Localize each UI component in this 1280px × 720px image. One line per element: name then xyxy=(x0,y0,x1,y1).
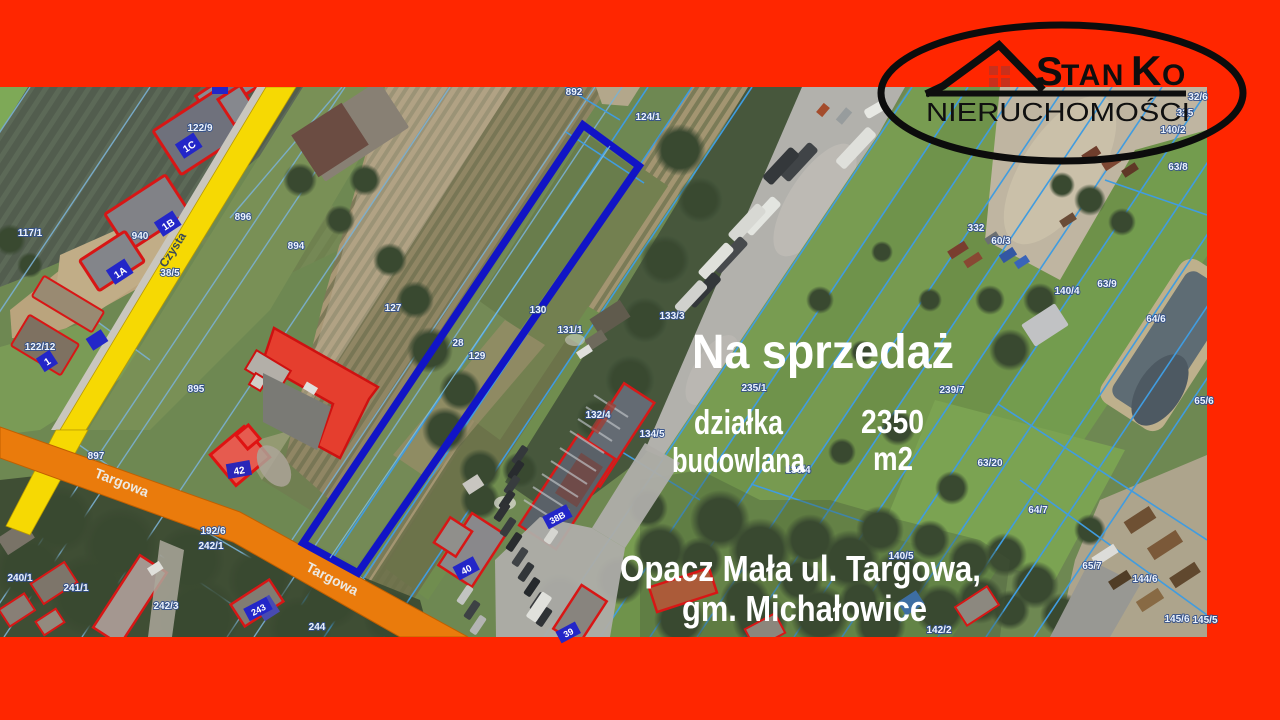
svg-text:63/9: 63/9 xyxy=(1097,279,1117,290)
svg-text:60/3: 60/3 xyxy=(991,236,1011,247)
svg-text:38/5: 38/5 xyxy=(160,268,180,279)
svg-text:895: 895 xyxy=(188,384,205,395)
svg-text:192/6: 192/6 xyxy=(200,526,225,537)
svg-text:892: 892 xyxy=(566,87,583,98)
svg-text:122/9: 122/9 xyxy=(187,123,212,134)
svg-text:940: 940 xyxy=(132,231,149,242)
svg-text:Na sprzedaż: Na sprzedaż xyxy=(692,326,954,379)
svg-text:244: 244 xyxy=(309,622,326,633)
svg-text:142/2: 142/2 xyxy=(926,625,951,636)
svg-text:130: 130 xyxy=(530,305,547,316)
svg-text:894: 894 xyxy=(288,241,305,252)
svg-text:gm. Michałowice: gm. Michałowice xyxy=(682,588,927,629)
svg-text:63/20: 63/20 xyxy=(977,458,1002,469)
svg-text:32/6: 32/6 xyxy=(1188,92,1208,103)
svg-text:64/7: 64/7 xyxy=(1028,505,1048,516)
svg-text:NIERUCHOMOŚCI: NIERUCHOMOŚCI xyxy=(926,97,1190,127)
svg-text:896: 896 xyxy=(235,212,252,223)
svg-text:K: K xyxy=(1131,47,1161,94)
svg-text:145/5: 145/5 xyxy=(1192,615,1217,626)
svg-text:132/4: 132/4 xyxy=(585,410,610,421)
svg-text:131/1: 131/1 xyxy=(557,325,582,336)
svg-text:TAN: TAN xyxy=(1061,59,1125,92)
svg-text:127: 127 xyxy=(385,303,402,314)
svg-text:133/3: 133/3 xyxy=(659,311,684,322)
svg-text:O: O xyxy=(1162,59,1185,92)
svg-text:124/1: 124/1 xyxy=(635,112,660,123)
svg-text:65/7: 65/7 xyxy=(1082,561,1102,572)
svg-text:28: 28 xyxy=(452,338,464,349)
svg-text:241/1: 241/1 xyxy=(63,583,88,594)
svg-text:63/8: 63/8 xyxy=(1168,162,1188,173)
svg-text:budowlana: budowlana xyxy=(672,442,806,480)
svg-text:897: 897 xyxy=(88,451,105,462)
svg-text:2350: 2350 xyxy=(861,403,924,440)
svg-text:122/12: 122/12 xyxy=(25,342,56,353)
svg-text:332: 332 xyxy=(968,223,985,234)
svg-text:239/7: 239/7 xyxy=(939,385,964,396)
svg-text:117/1: 117/1 xyxy=(18,228,43,239)
svg-text:144/6: 144/6 xyxy=(1132,574,1157,585)
svg-text:235/1: 235/1 xyxy=(741,383,766,394)
svg-text:działka: działka xyxy=(694,404,784,442)
svg-text:134/5: 134/5 xyxy=(639,429,664,440)
svg-text:242/1: 242/1 xyxy=(198,541,223,552)
svg-text:64/6: 64/6 xyxy=(1146,314,1166,325)
svg-text:145/6: 145/6 xyxy=(1164,614,1189,625)
svg-text:140/4: 140/4 xyxy=(1054,286,1079,297)
svg-text:S: S xyxy=(1036,50,1063,94)
svg-text:240/1: 240/1 xyxy=(7,573,32,584)
svg-text:Opacz Mała ul. Targowa,: Opacz Mała ul. Targowa, xyxy=(620,548,981,589)
svg-text:242/3: 242/3 xyxy=(153,601,178,612)
svg-text:65/6: 65/6 xyxy=(1194,396,1214,407)
svg-text:m2: m2 xyxy=(873,440,913,477)
svg-text:129: 129 xyxy=(469,351,486,362)
